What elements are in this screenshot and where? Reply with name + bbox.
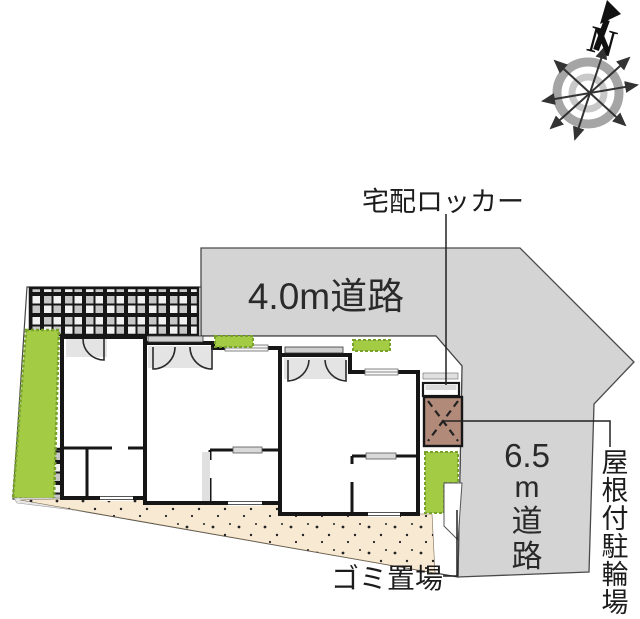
bike-label-char-4: 駐 <box>602 532 629 562</box>
hedge-front-2 <box>353 340 390 351</box>
unit-1 <box>62 337 145 501</box>
site-plan-svg: 宅配ロッカー 4.0m道路 6.5 m 道 路 ゴミ置場 屋 根 付 駐 輪 場… <box>0 0 640 619</box>
eave-band-2 <box>285 347 343 353</box>
unit-2-porch <box>148 346 211 368</box>
right-strip-band <box>423 373 458 379</box>
bike-label-char-5: 輪 <box>602 560 629 590</box>
road-right-line-1: 6.5 <box>504 437 550 474</box>
garbage-label: ゴミ置場 <box>331 563 443 594</box>
unit-3-window <box>368 511 400 517</box>
unit-2-terrace <box>202 452 210 501</box>
unit-3 <box>280 355 418 517</box>
unit-2-window <box>228 500 262 506</box>
unit-3-inner-window <box>366 453 396 459</box>
eave-band-1 <box>148 336 203 342</box>
bike-label-char-3: 付 <box>602 504 629 534</box>
road-right-line-2: m <box>515 471 540 504</box>
unit-1-window <box>100 495 133 501</box>
road-top-label: 4.0m道路 <box>248 276 404 317</box>
unit-2-inner-window <box>233 447 262 453</box>
hedge-front-1 <box>215 336 253 347</box>
unit-3-top-window <box>365 369 398 375</box>
bike-label-char-6: 場 <box>602 588 629 618</box>
delivery-locker <box>423 383 459 396</box>
bike-label-char-2: 根 <box>602 476 629 506</box>
site-plan-canvas: 宅配ロッカー 4.0m道路 6.5 m 道 路 ゴミ置場 屋 根 付 駐 輪 場… <box>0 0 640 619</box>
delivery-locker-label: 宅配ロッカー <box>362 187 524 217</box>
tiled-area-top-left <box>30 288 198 335</box>
unit-2 <box>145 343 280 506</box>
bike-label-char-1: 屋 <box>602 448 629 478</box>
bike-parking-label: 屋 根 付 駐 輪 場 <box>602 448 629 618</box>
unit-1-porch <box>66 339 107 357</box>
unit-3-porch <box>284 358 346 379</box>
road-right-line-4: 路 <box>512 539 543 574</box>
road-right-line-3: 道 <box>512 504 543 539</box>
